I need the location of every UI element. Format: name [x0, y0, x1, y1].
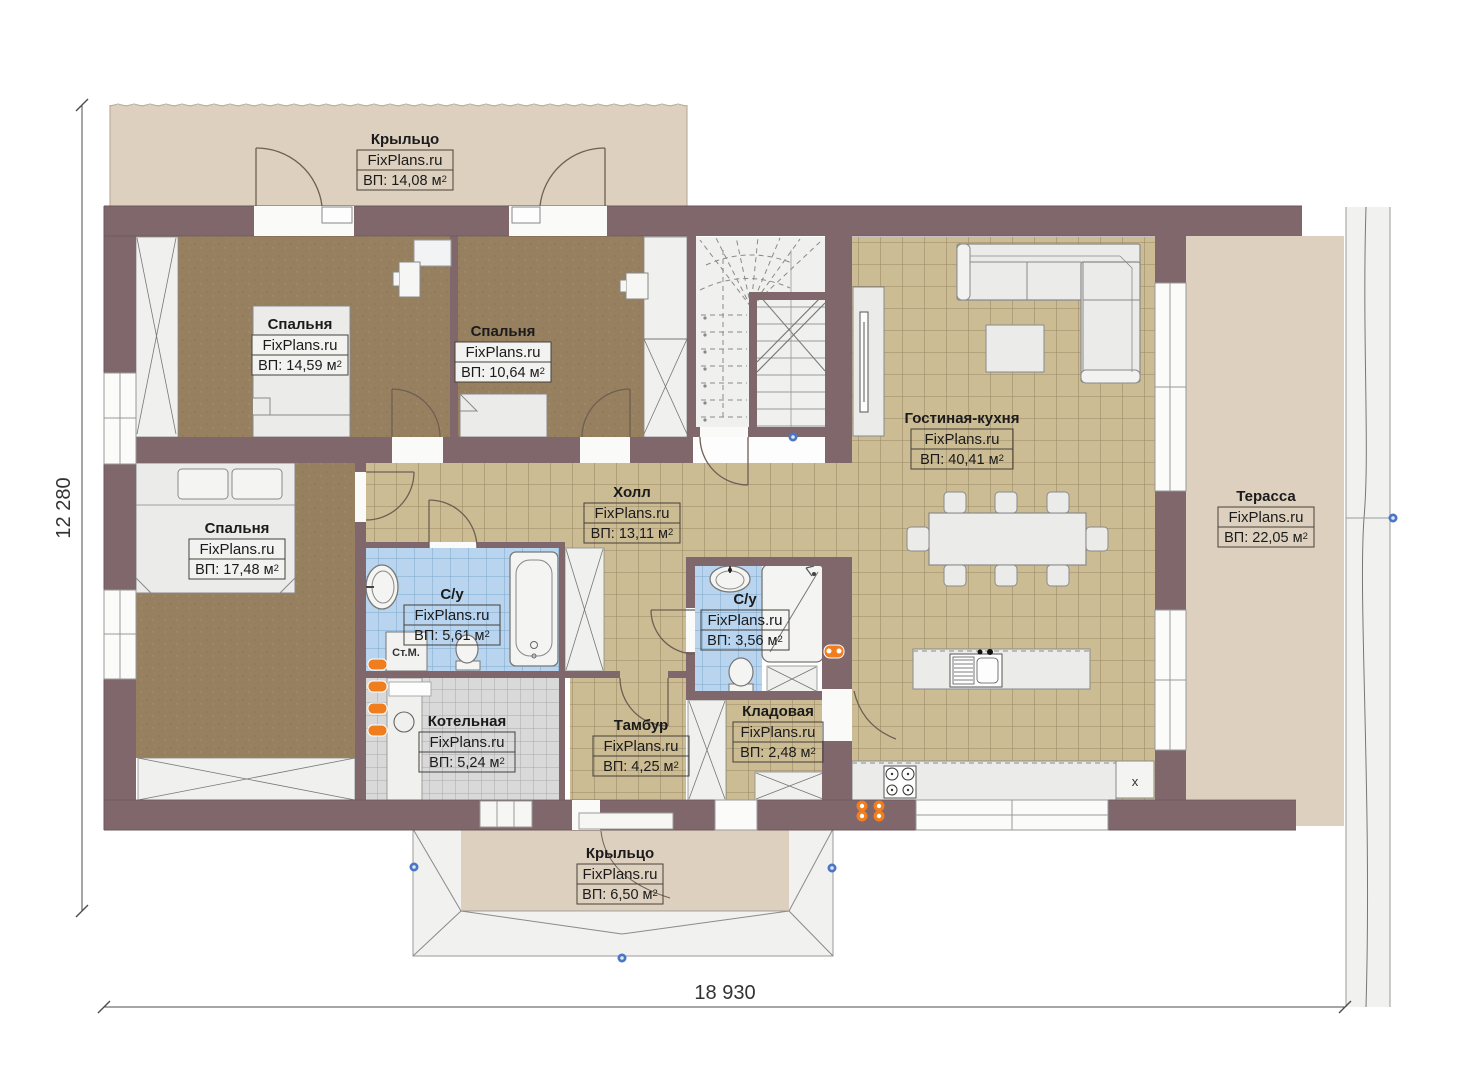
svg-text:Ст.М.: Ст.М. — [392, 647, 420, 659]
svg-text:Спальня: Спальня — [471, 323, 536, 340]
svg-text:Кладовая: Кладовая — [742, 703, 814, 720]
svg-text:ВП: 14,08 м2: ВП: 14,08 м2 — [363, 173, 447, 189]
svg-text:12 280: 12 280 — [53, 477, 75, 538]
svg-text:Гостиная-кухня: Гостиная-кухня — [905, 410, 1020, 427]
svg-text:Тамбур: Тамбур — [614, 717, 668, 734]
svg-text:ВП: 2,48 м2: ВП: 2,48 м2 — [740, 745, 816, 761]
svg-text:ВП: 10,64 м2: ВП: 10,64 м2 — [461, 365, 545, 381]
svg-text:х: х — [1132, 774, 1139, 789]
svg-text:ВП: 14,59 м2: ВП: 14,59 м2 — [258, 358, 342, 374]
svg-text:18 930: 18 930 — [694, 982, 755, 1004]
svg-text:FixPlans.ru: FixPlans.ru — [262, 337, 337, 354]
svg-text:FixPlans.ru: FixPlans.ru — [582, 866, 657, 883]
svg-text:FixPlans.ru: FixPlans.ru — [707, 612, 782, 629]
svg-text:ВП: 5,24 м2: ВП: 5,24 м2 — [429, 755, 505, 771]
svg-text:FixPlans.ru: FixPlans.ru — [429, 734, 504, 751]
svg-text:С/у: С/у — [440, 586, 464, 603]
svg-text:ВП: 3,56 м2: ВП: 3,56 м2 — [707, 633, 783, 649]
svg-text:Терасса: Терасса — [1236, 488, 1296, 505]
svg-text:ВП: 4,25 м2: ВП: 4,25 м2 — [603, 759, 679, 775]
svg-text:С/у: С/у — [733, 591, 757, 608]
svg-text:Крыльцо: Крыльцо — [586, 845, 654, 862]
svg-text:Спальня: Спальня — [205, 520, 270, 537]
svg-text:Холл: Холл — [613, 484, 651, 501]
svg-text:ВП: 5,61 м2: ВП: 5,61 м2 — [414, 628, 490, 644]
svg-text:Спальня: Спальня — [268, 316, 333, 333]
svg-text:ВП: 6,50 м2: ВП: 6,50 м2 — [582, 887, 658, 903]
svg-text:FixPlans.ru: FixPlans.ru — [594, 505, 669, 522]
svg-text:FixPlans.ru: FixPlans.ru — [367, 152, 442, 169]
svg-text:FixPlans.ru: FixPlans.ru — [199, 541, 274, 558]
svg-text:ВП: 40,41 м2: ВП: 40,41 м2 — [920, 452, 1004, 468]
svg-text:FixPlans.ru: FixPlans.ru — [1228, 509, 1303, 526]
svg-text:ВП: 17,48 м2: ВП: 17,48 м2 — [195, 562, 279, 578]
svg-text:Крыльцо: Крыльцо — [371, 131, 439, 148]
svg-text:FixPlans.ru: FixPlans.ru — [465, 344, 540, 361]
svg-text:FixPlans.ru: FixPlans.ru — [924, 431, 999, 448]
svg-text:ВП: 22,05 м2: ВП: 22,05 м2 — [1224, 530, 1308, 546]
svg-text:FixPlans.ru: FixPlans.ru — [603, 738, 678, 755]
svg-text:Котельная: Котельная — [428, 713, 507, 730]
svg-text:FixPlans.ru: FixPlans.ru — [414, 607, 489, 624]
svg-text:FixPlans.ru: FixPlans.ru — [740, 724, 815, 741]
svg-text:ВП: 13,11 м2: ВП: 13,11 м2 — [591, 526, 674, 542]
